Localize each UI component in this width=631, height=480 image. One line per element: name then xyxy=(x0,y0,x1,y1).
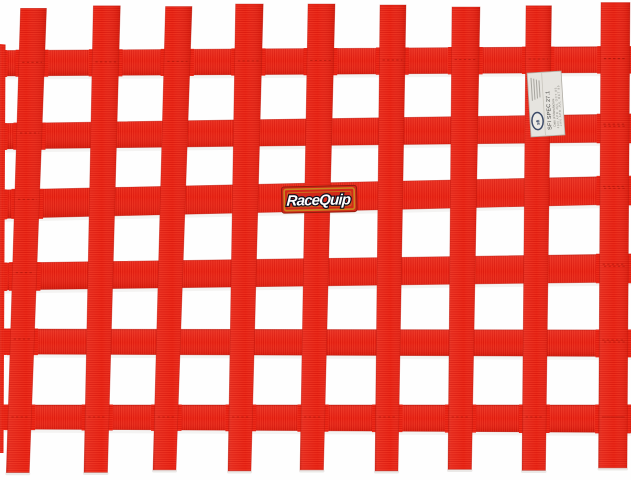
svg-text:sfi: sfi xyxy=(535,120,540,126)
svg-text:RaceQuip: RaceQuip xyxy=(286,191,351,209)
